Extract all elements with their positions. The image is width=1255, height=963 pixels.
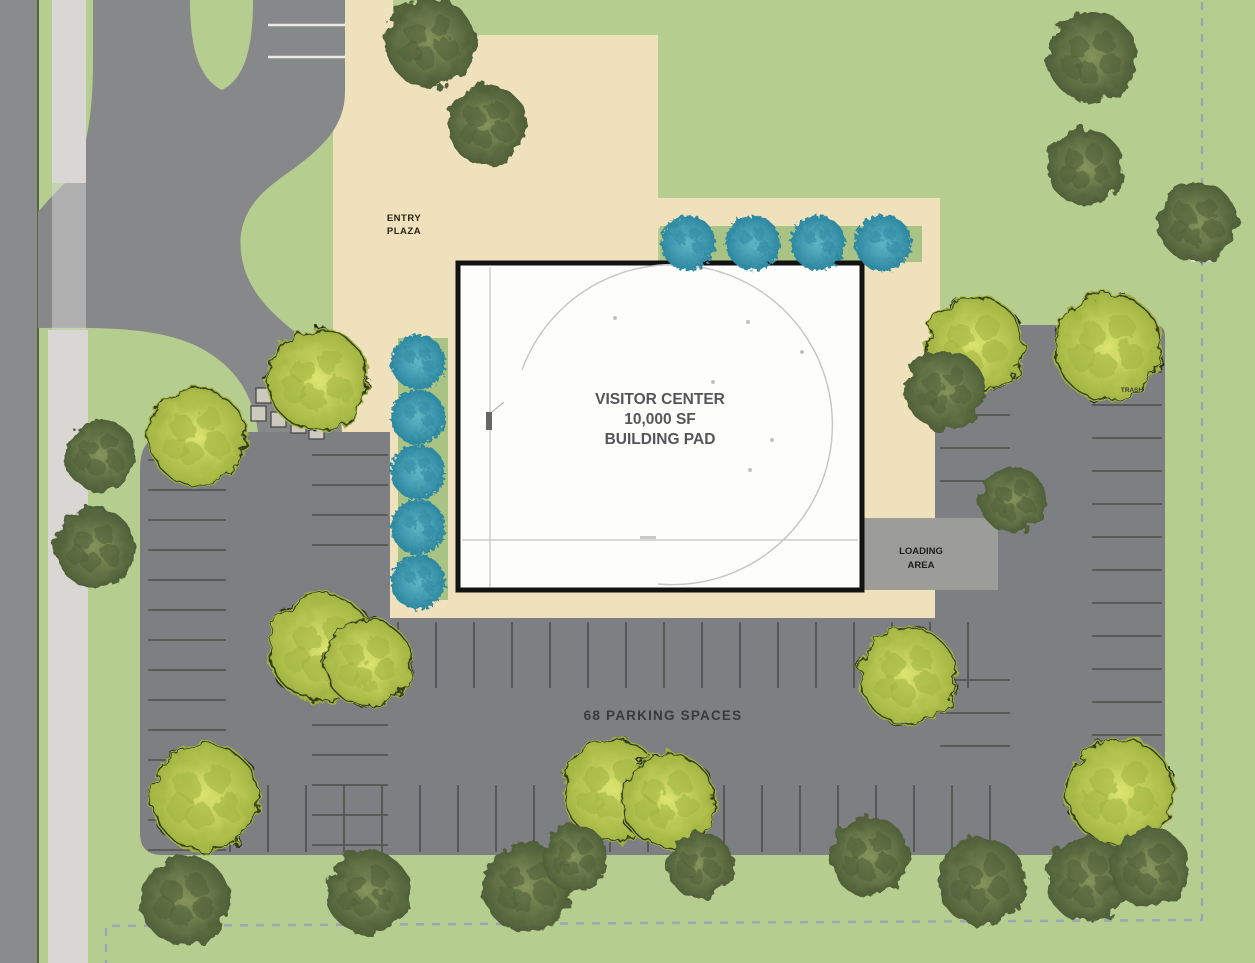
ornamental-tree-symbol — [392, 391, 444, 443]
evergreen-tree-symbol — [542, 825, 608, 891]
evergreen-tree-symbol — [385, 0, 475, 87]
evergreen-tree-symbol — [938, 838, 1026, 926]
shade-tree-symbol — [150, 742, 260, 852]
evergreen-tree-symbol — [55, 508, 135, 588]
evergreen-tree-symbol — [447, 85, 527, 165]
trash-enclosure-label: TRASH — [1121, 387, 1144, 394]
loading-area-label-line2: AREA — [908, 560, 935, 571]
evergreen-tree-symbol — [667, 832, 733, 898]
building-label-line1: VISITOR CENTER — [595, 391, 725, 408]
parking-count-label: 68 PARKING SPACES — [584, 708, 743, 723]
evergreen-tree-symbol — [64, 419, 136, 491]
entry-plaza-label-line1: ENTRY — [387, 213, 422, 224]
evergreen-tree-symbol — [830, 817, 910, 897]
plaza-south-walk — [390, 588, 1000, 620]
ornamental-tree-symbol — [392, 501, 444, 553]
building-label-line3: BUILDING PAD — [605, 431, 716, 448]
site-plan: ENTRY PLAZA VISITOR CENTER 10,000 SF BUI… — [0, 0, 1255, 963]
entry-plaza-label-line2: PLAZA — [387, 226, 421, 237]
door-mark — [486, 412, 492, 430]
ornamental-tree-symbol — [392, 556, 444, 608]
building-label-line2: 10,000 SF — [624, 411, 696, 428]
ornamental-tree-symbol — [856, 216, 910, 270]
evergreen-tree-symbol — [1047, 129, 1123, 205]
ornamental-tree-symbol — [392, 446, 444, 498]
main-road — [0, 0, 38, 963]
evergreen-tree-symbol — [1157, 182, 1237, 262]
evergreen-tree-symbol — [140, 855, 230, 945]
sidewalk-crossing — [52, 183, 86, 330]
crosswalk-paver — [251, 406, 266, 421]
ornamental-tree-symbol — [662, 217, 714, 269]
ornamental-tree-symbol — [392, 336, 444, 388]
evergreen-tree-symbol — [326, 850, 410, 934]
evergreen-tree-symbol — [905, 350, 985, 430]
evergreen-tree-symbol — [980, 467, 1046, 533]
ornamental-tree-symbol — [727, 217, 779, 269]
ornamental-tree-symbol — [792, 217, 844, 269]
evergreen-tree-symbol — [1110, 828, 1190, 908]
shade-tree-symbol — [147, 387, 247, 487]
site-plan-canvas: ENTRY PLAZA VISITOR CENTER 10,000 SF BUI… — [0, 0, 1255, 963]
dimension-mark — [640, 536, 656, 539]
loading-area-label-line1: LOADING — [899, 546, 943, 557]
evergreen-tree-symbol — [1047, 12, 1137, 102]
sidewalk-island — [52, 0, 86, 183]
